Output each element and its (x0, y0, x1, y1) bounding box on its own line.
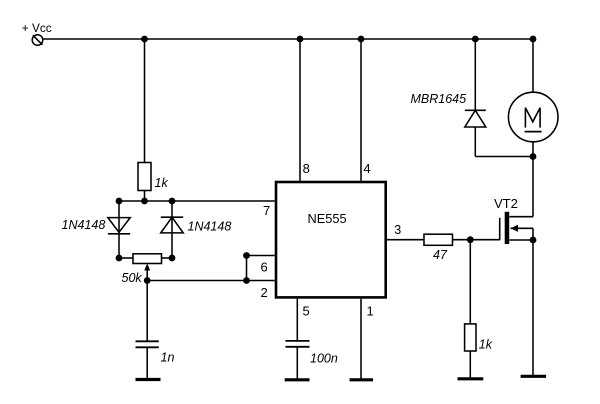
svg-text:2: 2 (261, 285, 268, 300)
svg-text:50k: 50k (122, 271, 143, 285)
svg-text:MBR1645: MBR1645 (411, 92, 467, 106)
svg-text:3: 3 (394, 223, 401, 237)
svg-text:1: 1 (367, 304, 374, 319)
svg-text:1N4148: 1N4148 (188, 220, 232, 234)
svg-text:47: 47 (433, 248, 448, 262)
svg-text:1k: 1k (479, 338, 493, 352)
svg-text:NE555: NE555 (308, 211, 347, 226)
svg-text:1N4148: 1N4148 (62, 218, 106, 232)
svg-text:8: 8 (303, 161, 310, 176)
svg-text:VT2: VT2 (494, 196, 518, 211)
svg-text:1n: 1n (161, 351, 175, 365)
svg-text:100n: 100n (310, 352, 338, 366)
svg-text:4: 4 (363, 161, 370, 176)
svg-text:+ Vcc: + Vcc (22, 21, 52, 35)
svg-text:1k: 1k (155, 176, 169, 190)
svg-text:6: 6 (261, 260, 268, 275)
svg-text:5: 5 (303, 304, 310, 319)
svg-text:7: 7 (263, 203, 270, 218)
